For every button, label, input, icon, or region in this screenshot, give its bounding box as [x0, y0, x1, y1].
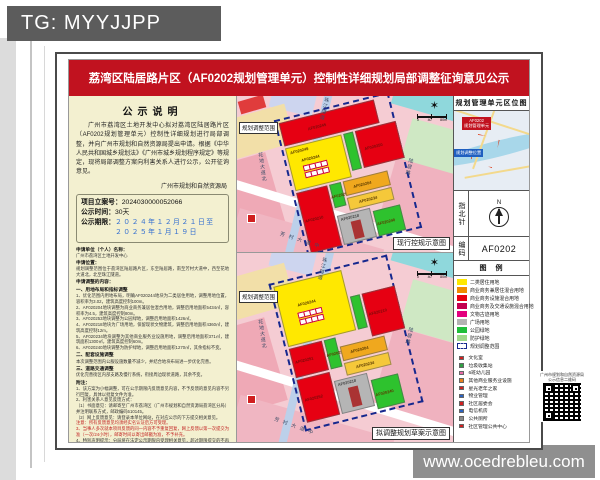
compass-row: 指北针 N	[454, 191, 529, 237]
poster-title-bar: 荔湾区陆居路片区（AF0202规划管理单元）控制性详细规划局部调整征询意见公示	[69, 60, 529, 96]
duration-value: 30天	[115, 209, 129, 216]
qr-code	[543, 383, 581, 421]
facility-item: 6班幼儿园	[457, 369, 527, 377]
notice-line: 本次调整范围内公服设施数量不减少，并结合地块布局进一步优化完善。	[76, 359, 229, 365]
poster-inner-frame: 荔湾区陆居路片区（AF0202规划管理单元）控制性详细规划局部调整征询意见公示 …	[68, 59, 530, 443]
facility-icons	[297, 307, 322, 325]
legend-item: 商业商务设施混合用地	[457, 294, 527, 302]
facility-item: 其他商业服务业设施	[457, 377, 527, 385]
heritage-building	[351, 219, 365, 239]
legend-item: 商业商务及交通设施混合用地	[457, 302, 527, 310]
facility-icon	[459, 409, 464, 414]
parcel-label: AF020240	[375, 388, 394, 397]
legend-facility-list: 文化室 垃圾收集站 6班幼儿园	[457, 354, 527, 430]
parcel-label: AF020249	[290, 146, 309, 155]
qr-caption-line2: 公示信息二维码	[532, 377, 592, 382]
case-info-box: 项目立案号：2024030000052066 公示时间：30天 公示期限：２０２…	[76, 194, 229, 243]
parcel: AF020218	[334, 373, 375, 414]
legend-item: 广场用地	[457, 318, 527, 326]
metro-icon	[247, 214, 256, 223]
parcel-label: AF020210	[368, 307, 387, 316]
unit-tag-blue: 规划调整位置	[454, 149, 483, 157]
parcel-label: AF020204	[353, 180, 372, 189]
notice-panel: 公示说明 广州市荔湾区土地开发中心拟对荔湾区陆居路片区（AF0202规划管理单元…	[69, 96, 237, 442]
legend-header: 图 例	[454, 261, 529, 276]
legend-item: 文物古迹用地	[457, 310, 527, 318]
scale-bar: 04080m	[417, 116, 447, 122]
legend-item: 商业商务兼居住混合用地	[457, 286, 527, 294]
parcel-label: AF020252	[304, 393, 323, 402]
legend-item: 公园绿地	[457, 326, 527, 334]
parcel: AF020210	[362, 286, 406, 337]
notice-signature: 广州市规划和自然资源局	[76, 181, 227, 190]
watermark-top-left: TG: MYYJJPP	[7, 6, 221, 41]
parcel-label: AF020251	[295, 355, 314, 364]
parcel-label: AF020240	[376, 217, 395, 226]
parcel-label: AF020245	[307, 122, 326, 131]
facility-item: 物业管理	[457, 392, 527, 400]
location-map-header: 规划管理单元区位图	[454, 96, 529, 111]
facility-icons	[303, 160, 328, 178]
facility-item: 社区居委会	[457, 400, 527, 408]
case-no-label: 项目立案号：	[81, 199, 122, 206]
poster-title: 荔湾区陆居路片区（AF0202规划管理单元）控制性详细规划局部调整征询意见公示	[89, 70, 509, 86]
notice-line: 4、特别声明提示：分局将在法定公示期限内受理相关意见，超过期限提交的不再作为本次…	[76, 438, 229, 442]
range-tag: 规划调整范围	[239, 122, 278, 134]
notice-line: 6、AF020240地块调整为防护绿地，调整后用地面积1270㎡，其余指标不变。	[76, 345, 229, 351]
unit-code-label: 编码	[454, 237, 469, 260]
map-caption-proposed: 拟调整规划草案示意图	[372, 427, 450, 440]
parcel: AF020240	[373, 204, 406, 236]
page-edge-line	[30, 40, 32, 468]
period-start: ２０２４年１２月２１日至	[115, 219, 215, 226]
notice-line: 2、AF020204地块调整为商业商务兼居住混合用地，调整后用地面积5434㎡，…	[76, 305, 229, 317]
location-minimap: AF0202规划管理单元 规划调整位置	[454, 111, 529, 191]
scale-bar: 04080m	[417, 273, 447, 279]
qr-block: 广州市规划和自然资源局 公示信息二维码	[531, 371, 593, 422]
legend-panel: 二类居住用地 商业商务兼居住混合用地 商业商务设施混合用地	[454, 276, 529, 442]
map-caption-current: 现行控规示意图	[393, 237, 450, 250]
facility-icon	[459, 416, 464, 421]
parcel: AF020250	[355, 121, 405, 168]
facility-icon	[459, 386, 464, 391]
notice-line: 3、当事人多次就本项目反馈的同一内容不予重复回复，网上反馈以第一次提交为准（一次…	[76, 426, 229, 438]
unit-code-value: AF0202	[482, 244, 517, 254]
parcel-label: AF020250	[364, 142, 383, 151]
notice-line: 申请调整的内容：	[76, 279, 229, 285]
legend-item: 规划调整范围	[457, 342, 527, 350]
notice-line: 优化完善街区内部支路及慢行系统，衔接周边现状道路，其余不变。	[76, 372, 229, 378]
metro-icon	[247, 395, 256, 404]
unit-info-panel: 规划管理单元区位图 AF0202规划管理单元 规划调整位置 指北针 N	[453, 96, 529, 442]
facility-icon	[459, 401, 464, 406]
parcel-label: AF020204	[350, 345, 369, 354]
legend-item: 防护绿地	[457, 334, 527, 342]
notice-line: 1、该方案为小幅调整，可在公示期限内反馈意见内容，不予反馈的意见内容不另行回复，…	[76, 386, 229, 398]
map-proposed-plan: AF020244 AF020210 AF020251 AF020253	[237, 253, 453, 442]
map-current-plan: AF020245 AF020249 AF020244 AF020250 AF	[237, 96, 453, 253]
parcel-label: AF020234	[355, 360, 374, 369]
unit-code-row: 编码 AF0202	[454, 237, 529, 261]
facility-icon	[459, 371, 464, 376]
facility-item: 社区管理公共中心	[457, 422, 527, 430]
compass-icon: ✶	[430, 256, 439, 269]
facility-item: 垃圾收集站	[457, 362, 527, 370]
legend-landuse-list: 二类居住用地 商业商务兼居住混合用地 商业商务设施混合用地	[457, 278, 527, 350]
parcel-label: AF020234	[358, 195, 377, 204]
duration-label: 公示时间：	[81, 209, 115, 216]
notice-line: （1）书面意见：请邮寄至广州市荔湾区（广州市规划和自然资源局荔湾区分局）并注明联…	[76, 403, 229, 415]
unit-tag-red: AF0202规划管理单元	[462, 117, 491, 130]
facility-item: 公共厕所	[457, 415, 527, 423]
notice-detail-lines: 申请单位（个人）名称： 广州市荔湾区土地开发中心 申请位置： 规划调整范围位于荔…	[76, 247, 229, 442]
period-end: ２０２５年１月１９日	[81, 229, 198, 236]
case-no-value: 2024030000052066	[122, 199, 182, 206]
legend-item: 二类居住用地	[457, 278, 527, 286]
notice-line: 1、优化范围内用地布局，明确AF020244地块为二类居住用地，调整用地位置，容…	[76, 293, 229, 305]
notice-body: 广州市荔湾区土地开发中心拟对荔湾区陆居路片区（AF0202规划管理单元）控制性详…	[76, 122, 229, 178]
notice-line: 广州市荔湾区土地开发中心	[76, 253, 229, 259]
notice-line: 规划调整范围位于荔湾区陆居路片区，东至陆居路，南至芳村大道中，西至花地大道北，北…	[76, 266, 229, 278]
parcel: AF020244	[273, 270, 356, 347]
photo-edge-band	[0, 38, 16, 480]
north-letter: N	[497, 200, 501, 206]
parcel: AF020240	[371, 373, 405, 409]
facility-item: 电信机房	[457, 407, 527, 415]
notice-line: 5、AF020234地块调整为其他商业服务业设施用地，调整后用地面积371㎡，建…	[76, 334, 229, 346]
facility-item: 文化室	[457, 354, 527, 362]
facility-icon	[459, 424, 464, 429]
maps-column: AF020245 AF020249 AF020244 AF020250 AF	[237, 96, 453, 442]
heritage-building	[348, 385, 363, 407]
facility-icon	[459, 394, 464, 399]
compass-icon: ✶	[430, 99, 439, 112]
compass-icon	[489, 207, 509, 227]
notice-heading: 公示说明	[76, 103, 229, 118]
parcel: AF020252	[296, 372, 340, 423]
parcel: AF020218	[337, 208, 377, 245]
facility-icon	[459, 356, 464, 361]
parcel-label: AF020210	[305, 214, 324, 223]
facility-icon	[459, 378, 464, 383]
page-edge-line-2	[44, 46, 45, 462]
parcel-label: AF020244	[297, 298, 316, 307]
period-label: 公示期限：	[81, 219, 115, 226]
compass-label: 指北针	[454, 191, 469, 236]
range-tag: 规划调整范围	[239, 291, 278, 303]
notice-poster: 荔湾区陆居路片区（AF0202规划管理单元）控制性详细规划局部调整征询意见公示 …	[55, 52, 543, 450]
notice-line: 4、AF020218地块为广场用地，保留现状文物建筑，调整后用地面积4360㎡，…	[76, 322, 229, 334]
facility-item: 星光老年之家	[457, 384, 527, 392]
facility-icon	[459, 363, 464, 368]
